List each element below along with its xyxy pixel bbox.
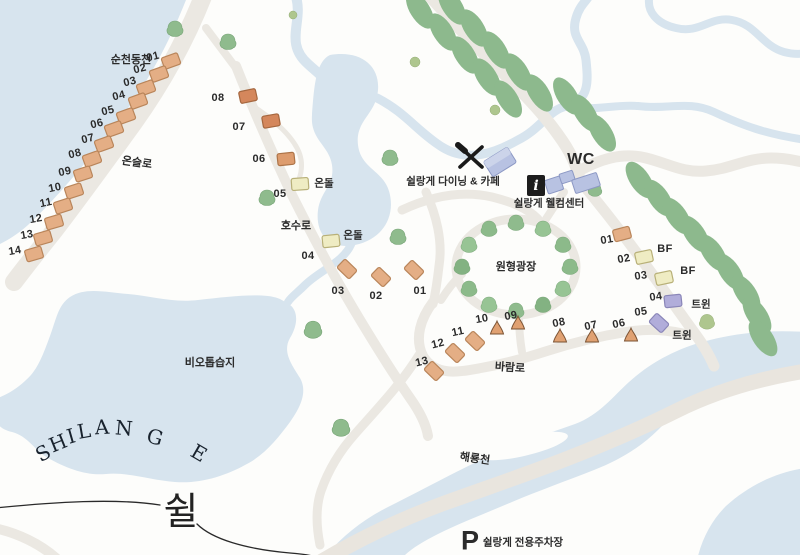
site-number-left-11: 11 xyxy=(39,196,54,210)
site-number-mid-03: 03 xyxy=(331,285,344,297)
map-canvas xyxy=(0,0,800,555)
brand-hangul-calligraphy: 쉴 xyxy=(164,481,199,536)
info-icon: i xyxy=(527,175,545,196)
shilange-resort-map: 01 02 03 04 05 06 07 08 09 10 11 12 13 1… xyxy=(0,0,800,555)
site-number-mid-01: 01 xyxy=(413,285,426,297)
welcome-center-label: 쉴랑게 웰컴센터 xyxy=(514,196,585,211)
parking-label: 쉴랑게 전용주차장 xyxy=(483,535,563,550)
road-baram-label: 바람로 xyxy=(494,358,525,376)
site-number-right-04: 04 xyxy=(649,290,664,304)
wetland-label: 비오톱습지 xyxy=(185,354,236,370)
wc-label: WC xyxy=(567,151,595,169)
site-number-mid-08: 08 xyxy=(211,92,224,104)
ondol-label-1: 온돌 xyxy=(314,176,333,191)
ondol-label-2: 온돌 xyxy=(343,228,362,243)
road-hosu-label: 호수로 xyxy=(281,217,311,233)
site-number-bot-11: 11 xyxy=(451,325,466,339)
site-number-left-14: 14 xyxy=(8,244,23,258)
plaza-label: 원형광장 xyxy=(496,258,536,274)
site-number-mid-04: 04 xyxy=(301,250,314,262)
site-number-right-05: 05 xyxy=(634,305,649,319)
site-number-mid-06: 06 xyxy=(252,153,265,165)
site-number-mid-07: 07 xyxy=(232,121,245,133)
site-number-mid-02: 02 xyxy=(369,290,382,302)
brand-letter: N xyxy=(114,415,134,440)
site-number-left-13: 13 xyxy=(20,228,35,242)
dining-label: 쉴랑게 다이닝 & 카페 xyxy=(406,174,500,189)
twin-label-2: 트윈 xyxy=(672,328,691,343)
waterways xyxy=(0,0,800,555)
parking-icon: P xyxy=(461,526,479,555)
site-number-left-12: 12 xyxy=(29,212,44,226)
site-number-bot-09: 09 xyxy=(504,309,519,323)
site-number-mid-05: 05 xyxy=(273,188,286,200)
twin-label-1: 트윈 xyxy=(691,297,710,312)
site-number-right-03: 03 xyxy=(634,269,649,283)
site-number-right-01: 01 xyxy=(600,233,615,247)
site-number-bot-10: 10 xyxy=(475,312,490,326)
site-number-right-02: 02 xyxy=(617,252,632,266)
brand-letter: A xyxy=(94,415,110,440)
top-river-label: 순천동천 xyxy=(111,51,151,67)
bf-label-2: BF xyxy=(680,265,695,277)
bf-label-1: BF xyxy=(657,243,672,255)
